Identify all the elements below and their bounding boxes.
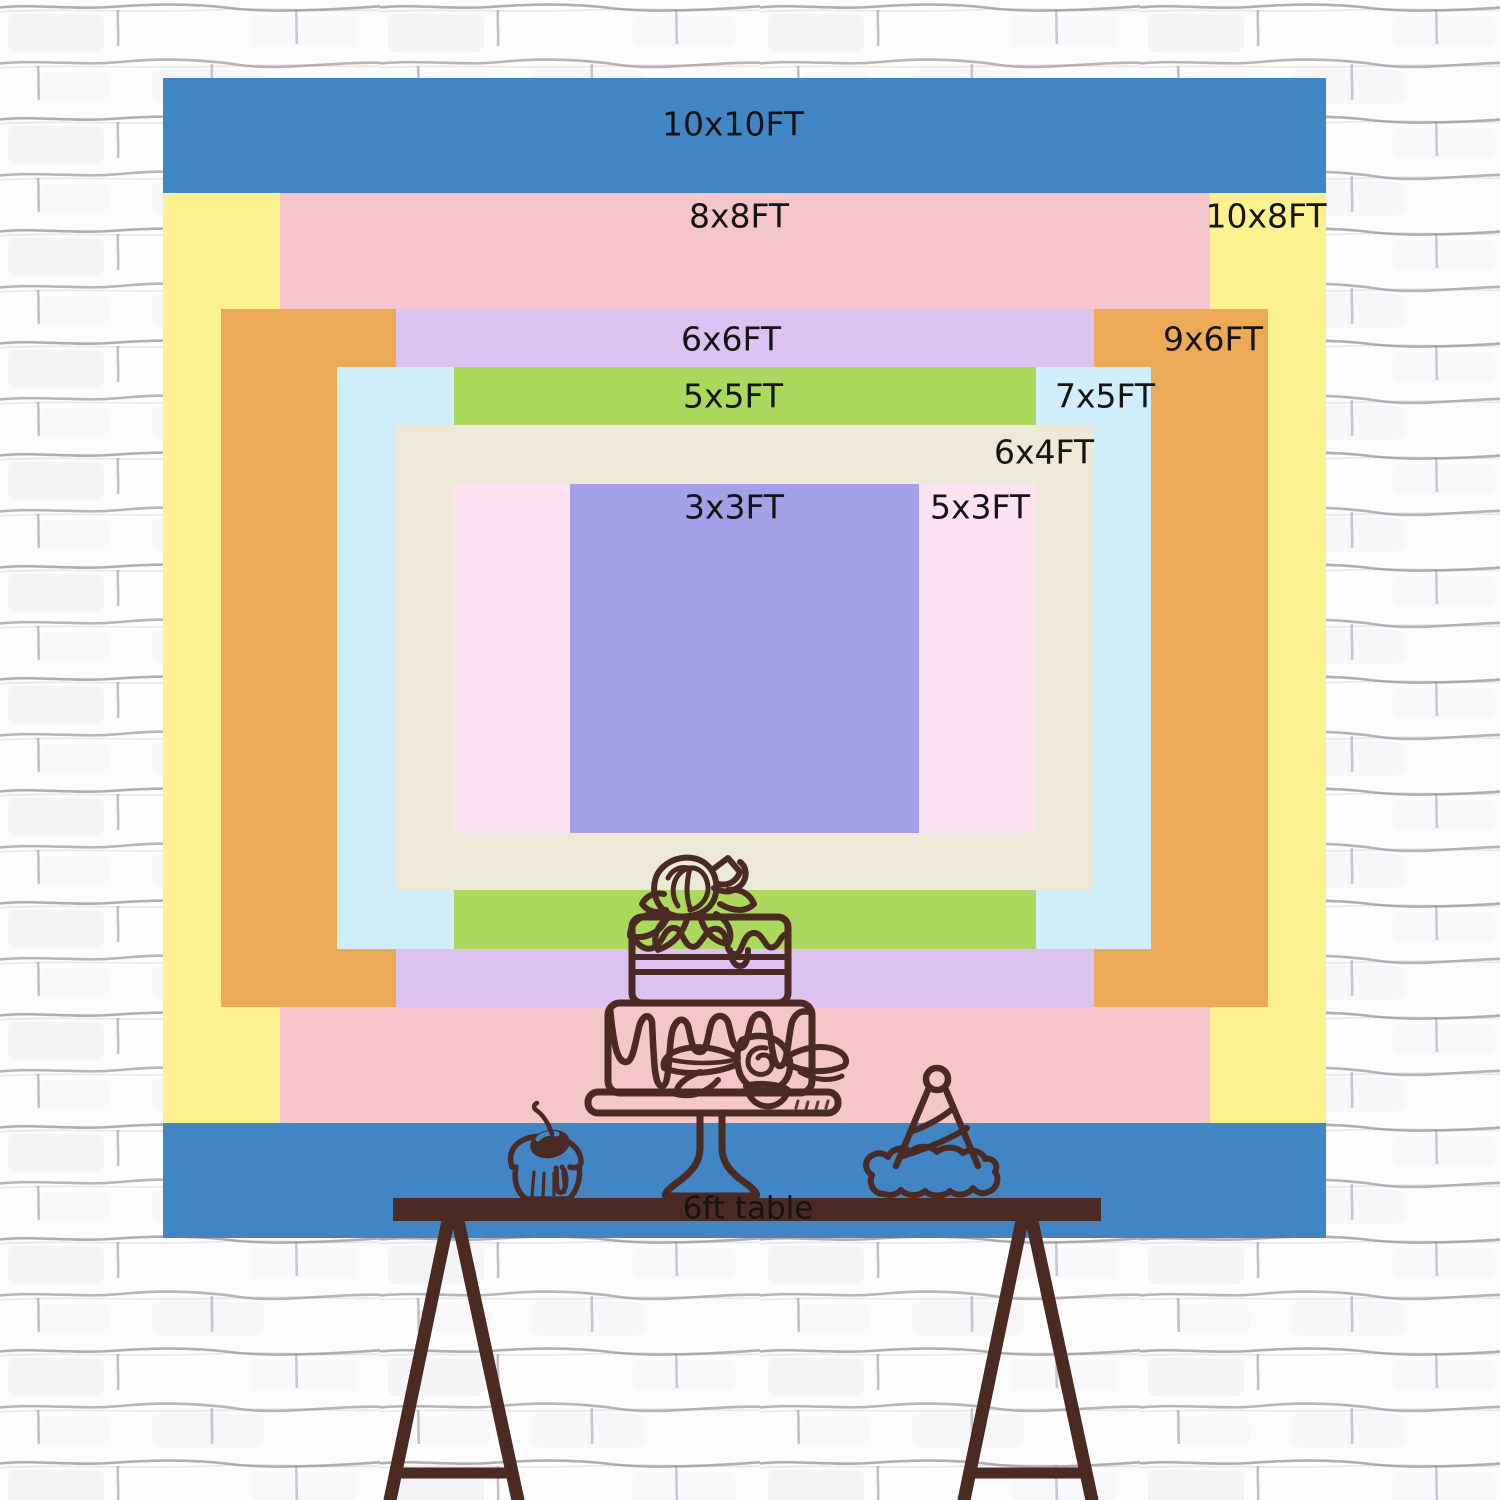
table-label: 6ft table	[683, 1194, 814, 1225]
table-legs	[389, 1221, 1093, 1500]
backdrop-size-chart: 10x10FT 10x8FT 8x8FT 9x6FT 6x6FT 7x5FT 5…	[0, 0, 1500, 1500]
decorations-illustration	[0, 0, 1500, 1500]
party-hat-icon	[866, 1068, 997, 1196]
cupcake-icon	[511, 1103, 582, 1199]
tiered-cake-icon	[588, 858, 846, 1196]
